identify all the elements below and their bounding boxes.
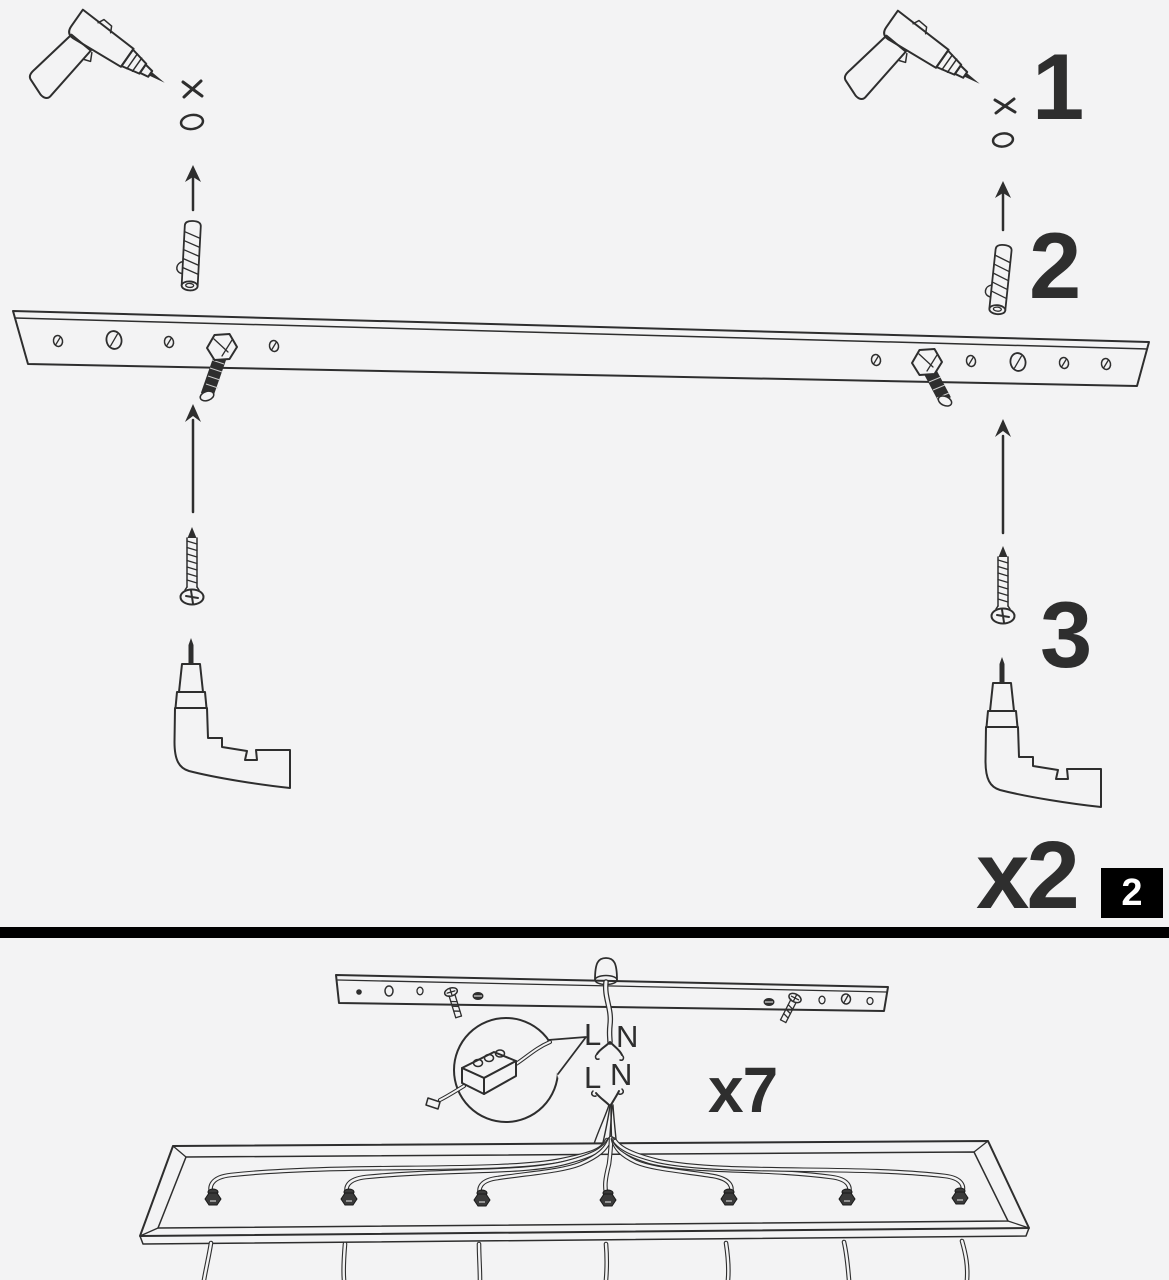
screw-icon [992, 546, 1015, 624]
arrow-up-icon [185, 165, 201, 210]
drill-icon [839, 4, 989, 150]
instruction-sheet: 1 2 3 x2 2 L N L N x7 [0, 0, 1169, 1280]
arrow-up-icon [185, 404, 201, 512]
wire-label-neutral-lower: N [610, 1059, 632, 1090]
drill-mark-x-icon [183, 81, 202, 97]
pendant-cables [204, 1241, 967, 1280]
mounting-bar-icon [13, 311, 1149, 408]
wire-label-live-upper: L [584, 1019, 601, 1050]
pilot-hole-icon [992, 132, 1014, 148]
step-screw-left [175, 404, 291, 788]
quantity-x2-label: x2 [976, 828, 1077, 924]
pilot-hole-icon [180, 114, 204, 131]
arrow-up-icon [995, 419, 1011, 533]
step-number-1: 1 [1032, 40, 1082, 134]
electric-screwdriver-icon [175, 638, 291, 788]
step-number-3: 3 [1040, 588, 1090, 682]
wire-label-live-lower: L [584, 1062, 601, 1093]
screw-icon [181, 527, 204, 605]
wall-plug-icon [983, 244, 1012, 315]
screw-hole-icon [356, 989, 362, 995]
drill-icon [24, 3, 174, 149]
screw-head-icon [473, 992, 484, 1000]
screw-head-icon [764, 998, 775, 1006]
section-divider [0, 927, 1169, 938]
arrow-up-icon [995, 181, 1011, 230]
quantity-x7-label: x7 [708, 1058, 777, 1122]
step-drill-right [839, 4, 1015, 315]
wall-plug-icon [176, 220, 201, 291]
drill-mark-x-icon [995, 99, 1015, 113]
step-number-2: 2 [1029, 219, 1079, 313]
wire-label-neutral-upper: N [616, 1021, 638, 1052]
page-number-badge: 2 [1101, 868, 1163, 918]
step-drill-left [24, 3, 204, 291]
callout-circle-icon [426, 1018, 590, 1122]
